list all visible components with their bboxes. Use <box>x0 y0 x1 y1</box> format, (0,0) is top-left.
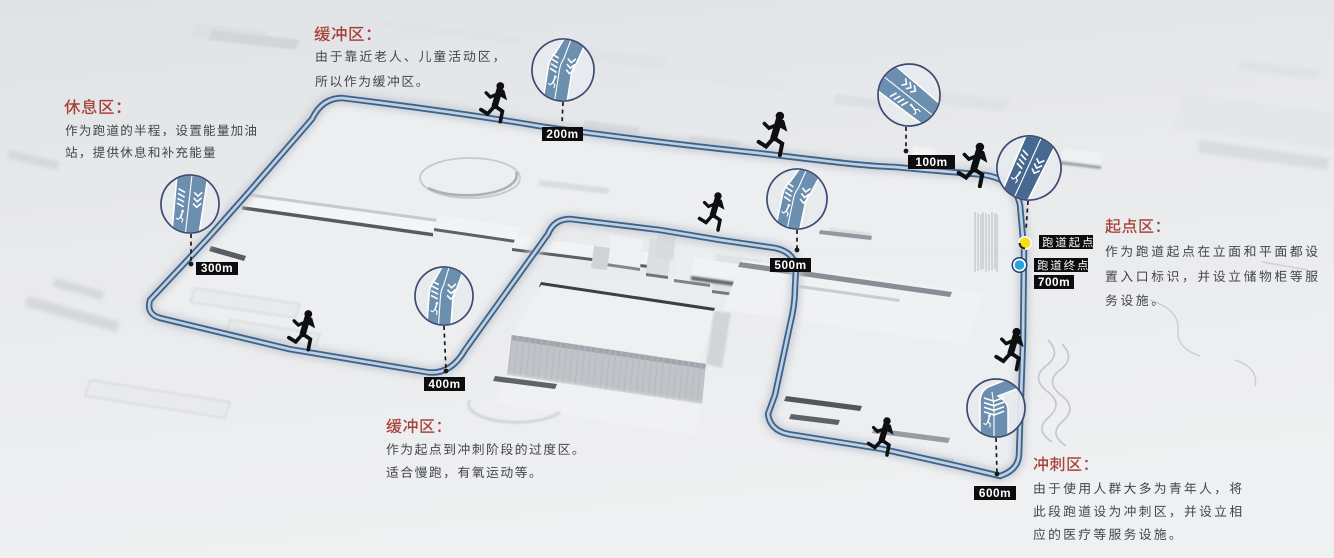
svg-text:400m: 400m <box>428 377 460 391</box>
svg-text:200m: 200m <box>546 127 578 141</box>
svg-text:600m: 600m <box>979 486 1011 500</box>
svg-text:700m: 700m <box>1038 275 1070 289</box>
svg-text:300m: 300m <box>201 261 233 275</box>
svg-text:500m: 500m <box>774 258 806 272</box>
svg-text:100m: 100m <box>915 155 947 169</box>
